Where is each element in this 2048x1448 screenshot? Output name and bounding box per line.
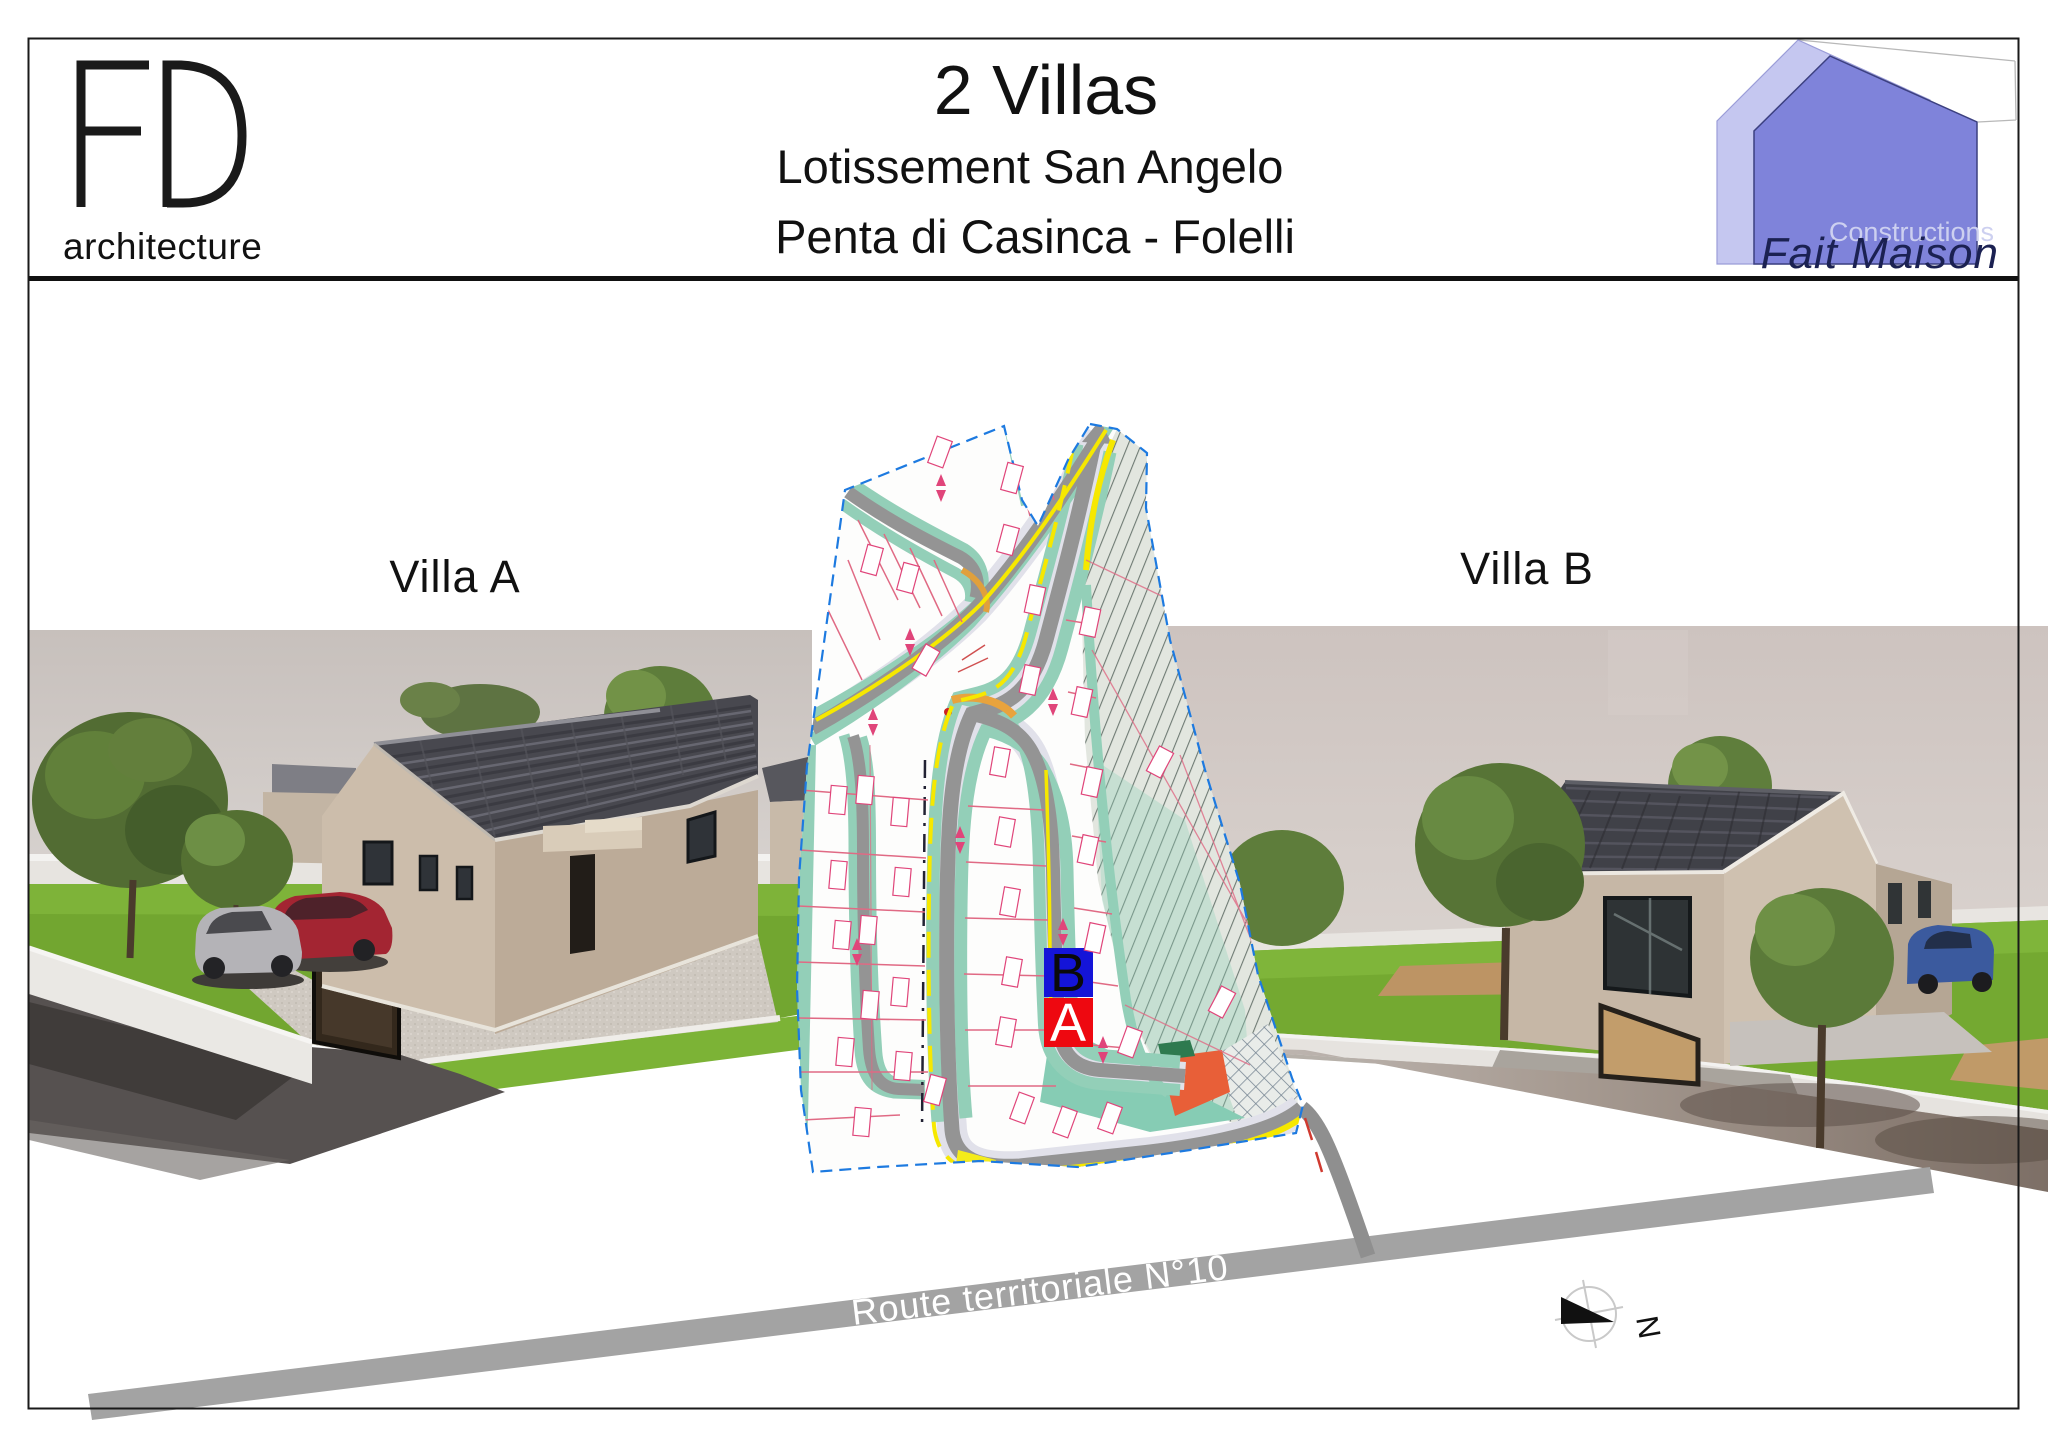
svg-text:Lotissement San Angelo: Lotissement San Angelo: [777, 140, 1284, 193]
svg-text:Penta di Casinca - Folelli: Penta di Casinca - Folelli: [775, 210, 1295, 263]
svg-text:architecture: architecture: [63, 226, 262, 267]
svg-text:Villa B: Villa B: [1460, 543, 1594, 594]
svg-text:Fait Maison: Fait Maison: [1761, 229, 1999, 278]
svg-text:Villa A: Villa A: [389, 551, 520, 602]
svg-text:A: A: [1050, 993, 1086, 1053]
svg-text:2 Villas: 2 Villas: [934, 51, 1158, 129]
